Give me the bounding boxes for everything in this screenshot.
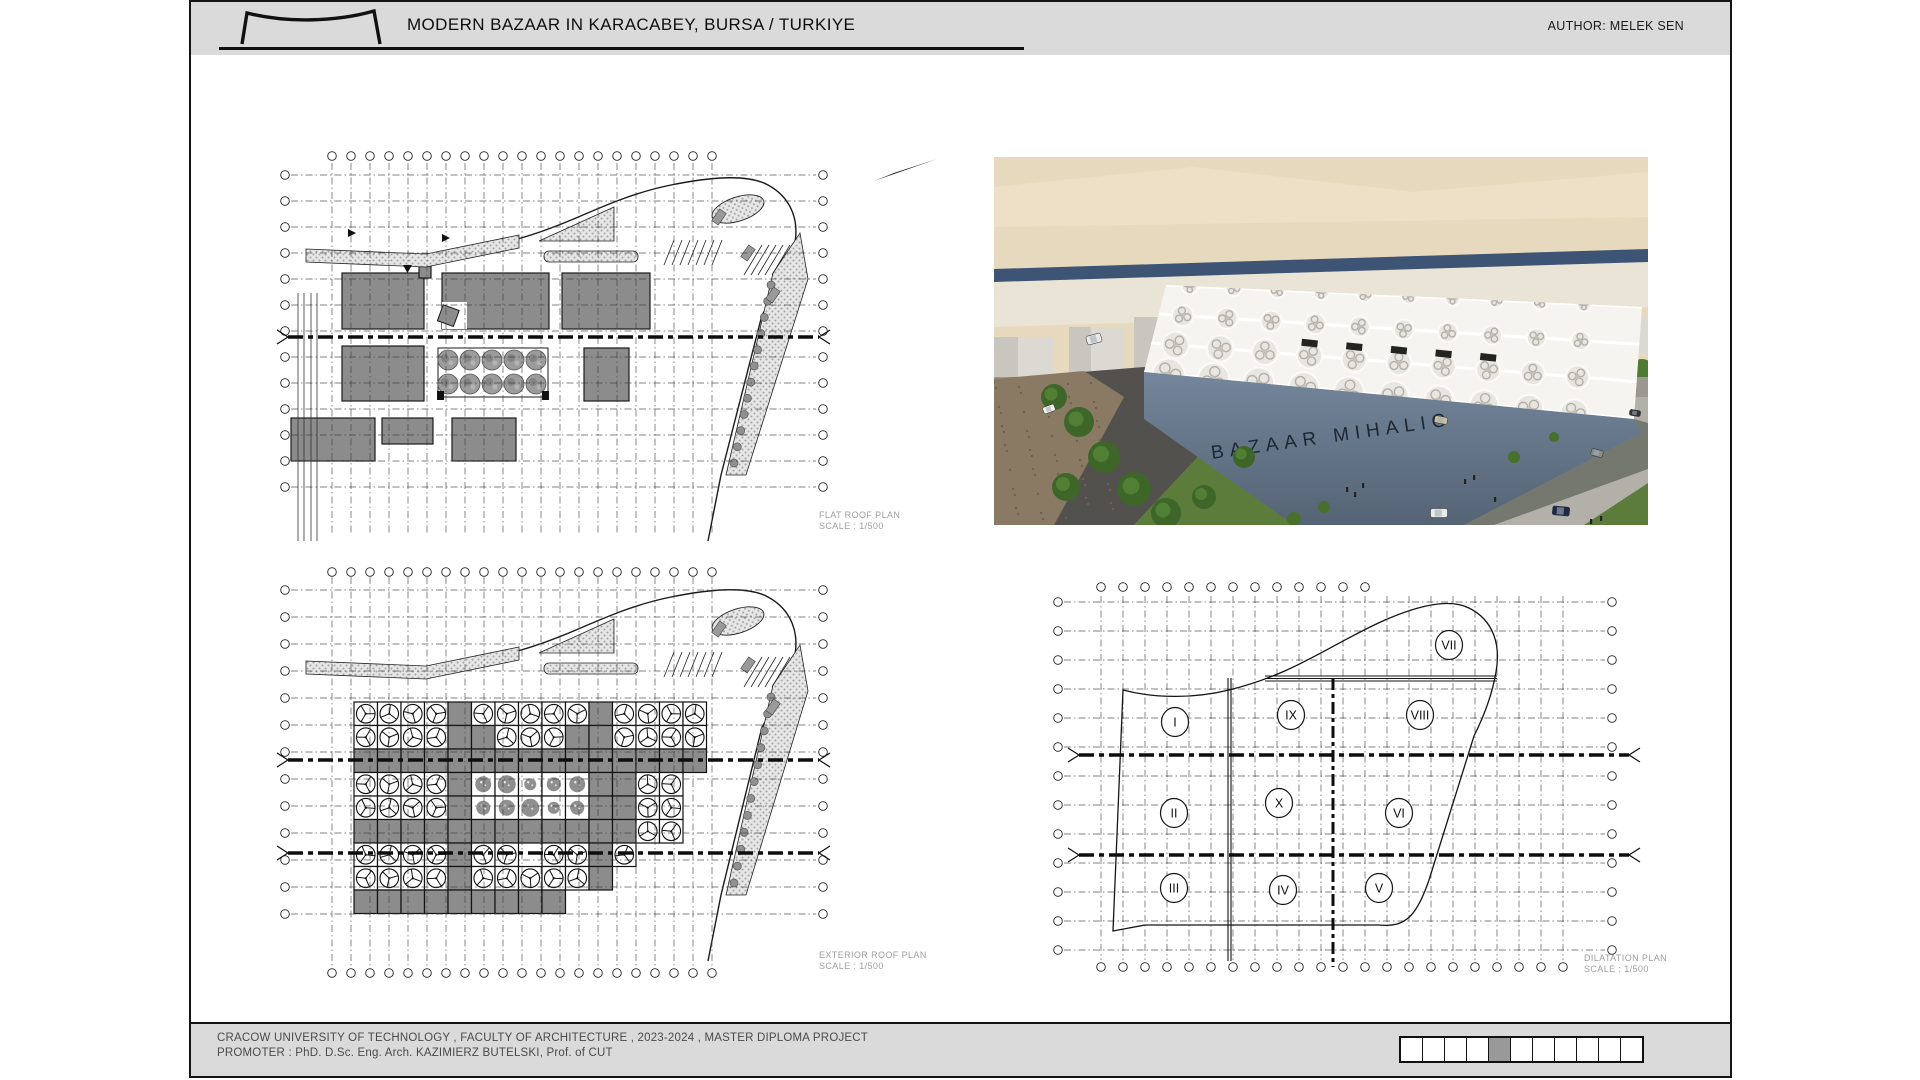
dilatation-plan-panel: VIIIIXVIIIIIXVIIIIIVV: [1049, 578, 1664, 980]
roof-profile-logo-icon: [231, 6, 393, 48]
author-label: AUTHOR: MELEK SEN: [1548, 19, 1684, 33]
dilatation-zone-label: VI: [1393, 807, 1405, 821]
dilatation-zone-label: V: [1375, 882, 1384, 896]
drawing-sheet: MODERN BAZAAR IN KARACABEY, BURSA / TURK…: [189, 0, 1732, 1078]
scale-bar-cell: [1401, 1038, 1423, 1061]
scale-bar-cell: [1423, 1038, 1445, 1061]
flat-roof-plan-drawing: [276, 145, 940, 543]
page: { "header": { "title": "MODERN BAZAAR IN…: [0, 0, 1920, 1080]
sheet-header: MODERN BAZAAR IN KARACABEY, BURSA / TURK…: [191, 2, 1730, 55]
dilatation-zone-label: X: [1275, 797, 1284, 811]
dilatation-zone-label: III: [1169, 882, 1179, 896]
render-panel: BAZAAR MIHALIC: [994, 157, 1648, 525]
dilatation-zone-label: VIII: [1411, 709, 1430, 723]
dilatation-zone-label: IV: [1277, 884, 1289, 898]
credits-line2: PROMOTER : PhD. D.Sc. Eng. Arch. KAZIMIE…: [217, 1046, 868, 1061]
project-credits: CRACOW UNIVERSITY OF TECHNOLOGY , FACULT…: [217, 1031, 868, 1061]
sheet-title: MODERN BAZAAR IN KARACABEY, BURSA / TURK…: [407, 15, 855, 35]
dilatation-zone-label: IX: [1285, 709, 1297, 723]
flat-roof-plan-label: FLAT ROOF PLANSCALE : 1/500: [819, 510, 900, 532]
exterior-roof-plan-drawing: [276, 565, 940, 980]
scale-bar-cell: [1555, 1038, 1577, 1061]
graphic-scale-bar: [1399, 1036, 1644, 1063]
dilatation-plan-drawing: VIIIIXVIIIIIXVIIIIIVV: [1049, 578, 1664, 980]
scale-bar-cell: [1599, 1038, 1621, 1061]
exterior-roof-plan-panel: [276, 565, 940, 980]
scale-bar-cell: [1577, 1038, 1599, 1061]
dilatation-zone-label: II: [1171, 807, 1178, 821]
title-underline: [219, 47, 1024, 50]
scale-bar-cell: [1489, 1038, 1511, 1061]
scale-bar-cell: [1621, 1038, 1642, 1061]
dilatation-zone-label: VII: [1441, 639, 1456, 653]
scale-bar-cell: [1445, 1038, 1467, 1061]
flat-roof-plan-panel: [276, 145, 940, 543]
dilatation-plan-label: DILATATION PLANSCALE : 1/500: [1584, 953, 1667, 975]
aerial-render-image: BAZAAR MIHALIC: [994, 157, 1648, 525]
scale-bar-cell: [1511, 1038, 1533, 1061]
scale-bar-cell: [1533, 1038, 1555, 1061]
scale-bar-cell: [1467, 1038, 1489, 1061]
exterior-roof-plan-label: EXTERIOR ROOF PLANSCALE : 1/500: [819, 950, 927, 972]
dilatation-zone-label: I: [1173, 716, 1176, 730]
sheet-footer: CRACOW UNIVERSITY OF TECHNOLOGY , FACULT…: [191, 1022, 1730, 1076]
credits-line1: CRACOW UNIVERSITY OF TECHNOLOGY , FACULT…: [217, 1031, 868, 1046]
